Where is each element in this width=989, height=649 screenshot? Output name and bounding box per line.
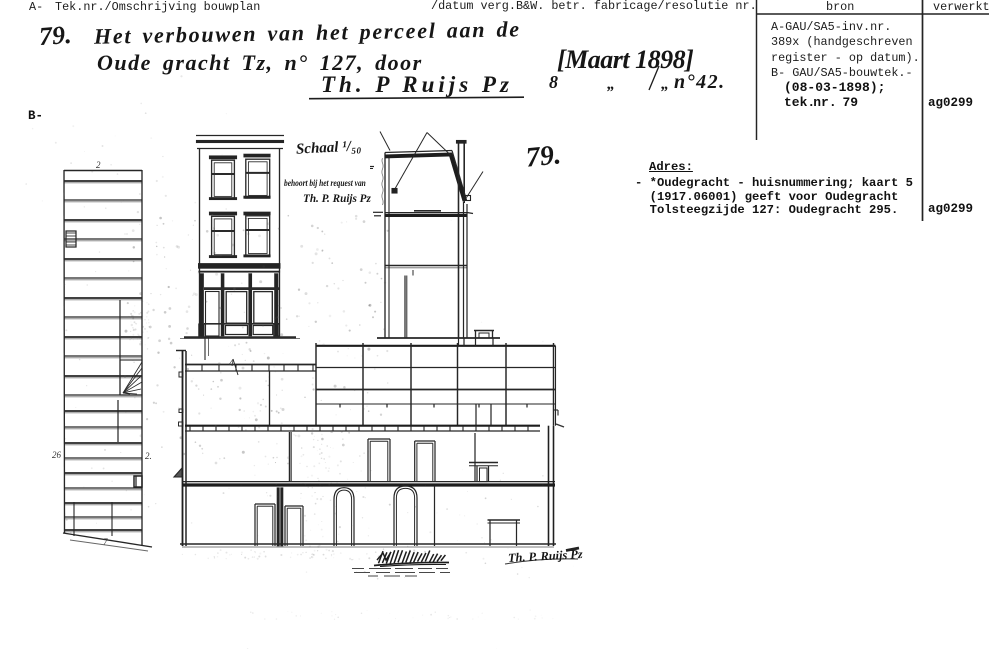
- svg-text:26: 26: [52, 450, 62, 460]
- svg-text:7: 7: [103, 537, 108, 547]
- svg-text:2: 2: [96, 160, 101, 170]
- svg-text:2.: 2.: [145, 451, 152, 461]
